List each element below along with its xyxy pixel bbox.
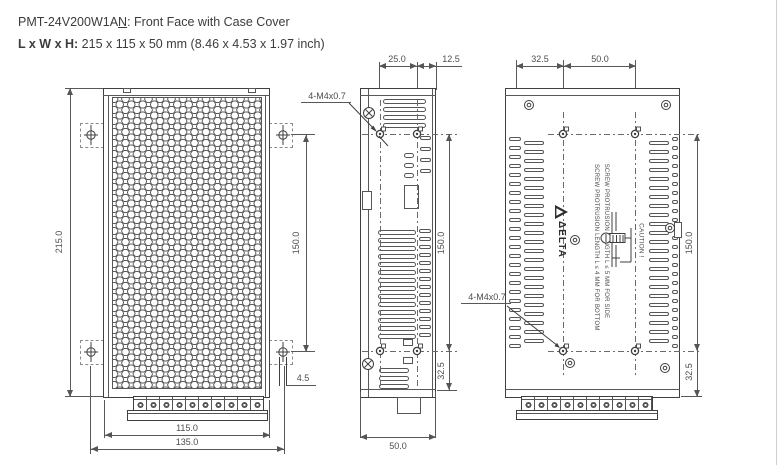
caution-screw-diagram bbox=[601, 212, 631, 267]
ring-screw-icon bbox=[525, 101, 675, 373]
leader-line bbox=[349, 103, 560, 348]
datasheet-drawing: PMT-24V200W1AN: Front Face with Case Cov… bbox=[0, 0, 779, 465]
m4-hole-icon bbox=[376, 127, 422, 355]
crosshair-hole-icon bbox=[84, 125, 290, 362]
phillips-screw-icon bbox=[363, 108, 375, 370]
drawing-symbols-overlay bbox=[0, 0, 779, 465]
